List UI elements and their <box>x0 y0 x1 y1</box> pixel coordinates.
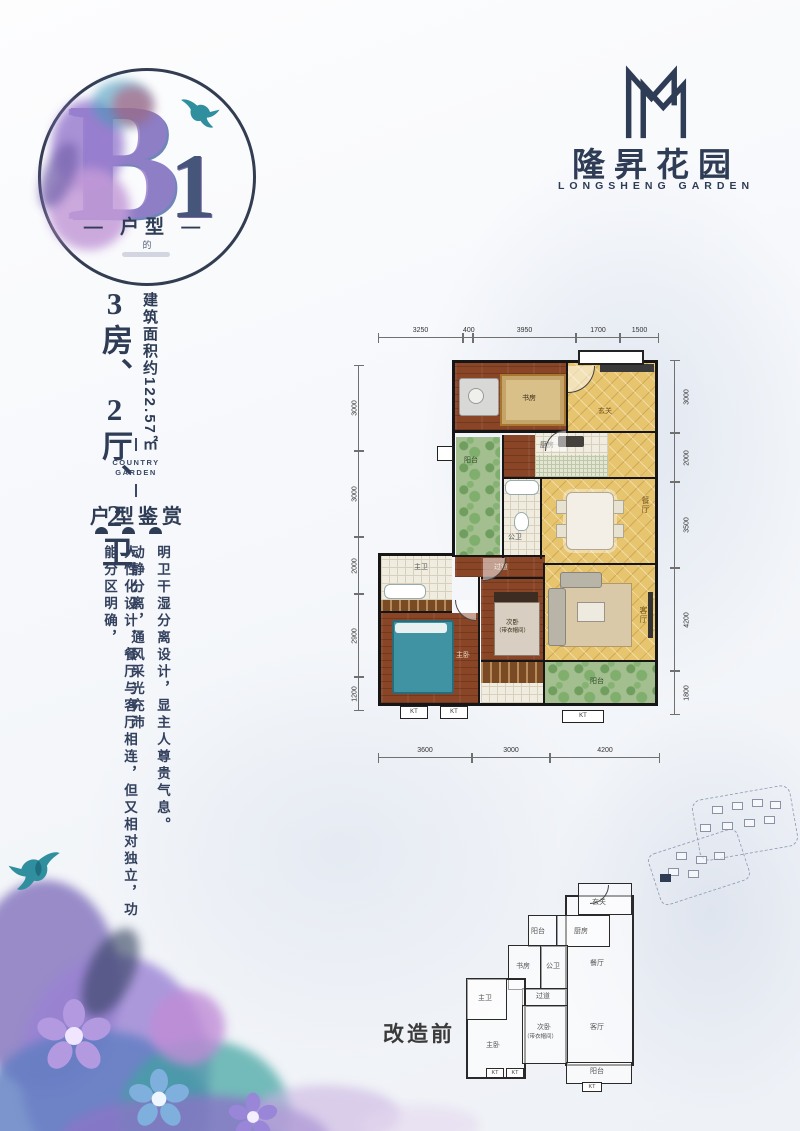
kitchen-counter <box>535 455 608 477</box>
room-label: 阳台 <box>464 455 478 465</box>
kt-box: KT <box>440 706 468 719</box>
dim-segment: 3000 <box>358 451 359 537</box>
bathtub <box>384 584 426 599</box>
laundry-patch <box>502 435 535 477</box>
bp-kt-box: KT <box>506 1068 524 1078</box>
hummingbird-icon <box>178 92 226 132</box>
room-label: 次卧 <box>506 616 519 626</box>
bp-kt-box: KT <box>486 1068 504 1078</box>
room-label: 客厅 <box>638 606 649 624</box>
tagline-line2: GARDEN <box>100 468 172 477</box>
dim-segment: 1200 <box>358 677 359 711</box>
dim-segment: 3250 <box>378 337 463 338</box>
room-label: 书房 <box>522 393 536 403</box>
dim-segment: 3600 <box>378 757 472 758</box>
dining-chair <box>613 500 624 514</box>
room-label: 餐厅 <box>640 496 651 514</box>
dim-segment: 2000 <box>674 433 675 482</box>
dim-segment: 4200 <box>674 568 675 671</box>
site-highlight-building <box>660 874 671 882</box>
sofa-long <box>548 588 566 646</box>
badge-sub-label: 的 <box>112 238 182 251</box>
dim-segment: 3000 <box>674 360 675 433</box>
dim-segment: 1500 <box>620 337 659 338</box>
flower-icon <box>228 1092 278 1131</box>
dome-ornament <box>149 527 162 534</box>
dining-chair <box>556 500 567 514</box>
dining-chair <box>556 524 567 538</box>
hummingbird-icon <box>0 842 64 896</box>
wardrobe-strip <box>481 660 545 683</box>
brand-monogram-icon <box>608 58 704 140</box>
appreciation-col-right: 明卫干湿分离设计，显主人尊贵气息。 <box>152 545 172 845</box>
room-label: 阳台 <box>590 676 604 686</box>
appreciation-title: 户型鉴赏 <box>90 500 186 529</box>
flower-icon <box>128 1068 190 1130</box>
room-label: 玄关 <box>598 406 612 416</box>
dim-segment: 3500 <box>674 482 675 568</box>
room-label: 公卫 <box>508 532 522 542</box>
dim-segment: 1800 <box>674 671 675 715</box>
room-label: 主卫 <box>414 562 428 572</box>
toilet <box>514 512 529 531</box>
brand-name-en: LONGSHENG GARDEN <box>548 180 764 192</box>
dining-chair <box>613 524 624 538</box>
dim-segment: 3000 <box>472 757 550 758</box>
divider-bar <box>135 438 137 451</box>
divider-bar <box>135 484 137 497</box>
dome-ornament <box>122 527 135 534</box>
before-plan-caption: 改造前 <box>383 1018 455 1048</box>
tagline-line1: COUNTRY <box>100 458 172 467</box>
dim-segment: 400 <box>463 337 473 338</box>
poster-page: B 1 — 户型 — 的 隆昇花园 LONGSHENG GARDEN 3房、2厅… <box>0 0 800 1131</box>
dome-ornament <box>95 527 108 534</box>
dim-segment: 4200 <box>550 757 660 758</box>
flower-icon <box>36 998 112 1074</box>
area-spec: 建筑面积约122.57㎡ <box>139 292 160 452</box>
appreciation-col-left: 人性化设计，餐厅与客厅相连，但又相对独立，功能分区明确， <box>99 545 139 925</box>
dim-segment: 1700 <box>576 337 620 338</box>
room-label-note: （带衣帽间） <box>496 626 529 634</box>
kt-box: KT <box>400 706 428 719</box>
room-dining <box>608 433 656 477</box>
brand-name-cn: 隆昇花园 <box>548 138 764 186</box>
dim-segment: 3000 <box>358 365 359 451</box>
closet-shelf <box>481 683 545 703</box>
coffee-table <box>577 602 605 622</box>
room-balcony-mid <box>456 437 500 557</box>
dim-segment: 2000 <box>358 537 359 594</box>
kt-box <box>437 446 453 461</box>
dim-segment: 2900 <box>358 594 359 677</box>
kt-box: KT <box>562 710 604 723</box>
dim-segment: 3950 <box>473 337 576 338</box>
badge-type-label: — 户型 — <box>70 212 220 239</box>
badge-tagline-smudge <box>122 252 170 257</box>
study-chair <box>468 388 484 404</box>
foyer-cabinet <box>600 364 654 372</box>
entry-step <box>578 350 644 365</box>
dining-table <box>566 492 614 550</box>
bp-kt-box: KT <box>582 1082 602 1092</box>
bed-pillows <box>395 623 447 633</box>
second-bed-headboard <box>494 592 538 602</box>
room-label: 主卧 <box>456 650 470 660</box>
sofa-short <box>560 572 602 588</box>
bathtub <box>505 480 539 495</box>
